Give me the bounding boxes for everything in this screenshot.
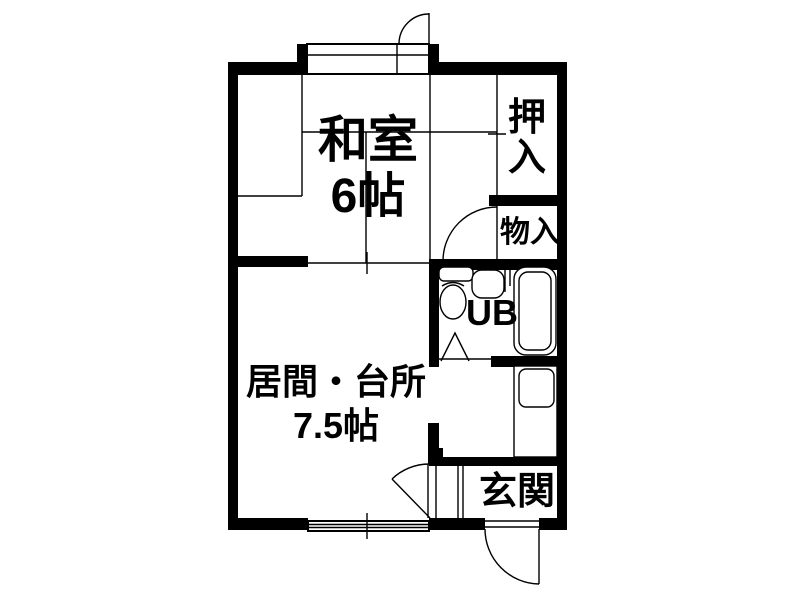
label-oshiire: 押入 [508,97,546,179]
ub-shelf [439,267,473,281]
wall-washitsu-ldk-divider [228,256,308,267]
window-bottom-frame [308,521,429,531]
genkan-door-arc [392,464,429,479]
wall-outer-top-right [438,62,567,75]
entrance-door-arc [485,529,539,584]
wall-oshiire-monoire-divider [489,195,567,206]
label-washitsu: 和室 [318,112,418,168]
label-monoire: 物入 [500,216,560,249]
label-genkan: 玄関 [479,471,555,513]
balcony-door-arc [399,14,429,44]
wall-genkan-north [429,457,567,466]
label-washitsu-size: 6帖 [331,170,406,223]
toilet-icon [440,285,466,319]
ub-folding-door-icon [441,333,469,361]
window-top [307,13,429,74]
kitchen-unit [514,366,557,457]
window-bottom [308,513,429,539]
floor-plan-canvas: 和室 6帖 居間・台所 7.5帖 押入 物入 UB 玄関 [0,0,800,600]
wall-outer-bottom-right [539,518,567,530]
room-labels: 和室 6帖 居間・台所 7.5帖 押入 物入 UB 玄関 [246,97,560,513]
wall-outer-top-left [228,62,298,75]
label-unit-bath: UB [466,292,518,333]
wall-outer-left [228,62,238,530]
bathtub-inner [519,272,551,350]
tatami-lines [238,75,497,263]
window-top-frame [307,44,429,74]
window-jamb-right [429,44,439,75]
genkan-door-leaf [392,479,430,518]
wall-genkan-stub-corner [428,448,443,464]
label-living-kitchen-size: 7.5帖 [293,405,379,446]
kitchen-sink-icon [519,369,554,407]
window-jamb-left [297,44,307,75]
label-living-kitchen: 居間・台所 [246,361,426,402]
floor-plan-drawing: 和室 6帖 居間・台所 7.5帖 押入 物入 UB 玄関 [0,0,800,600]
wall-ub-left [429,259,439,367]
monoire-door-arc [443,207,497,261]
wall-outer-bottom-left [228,518,308,530]
wall-outer-bottom-mid [429,518,485,530]
